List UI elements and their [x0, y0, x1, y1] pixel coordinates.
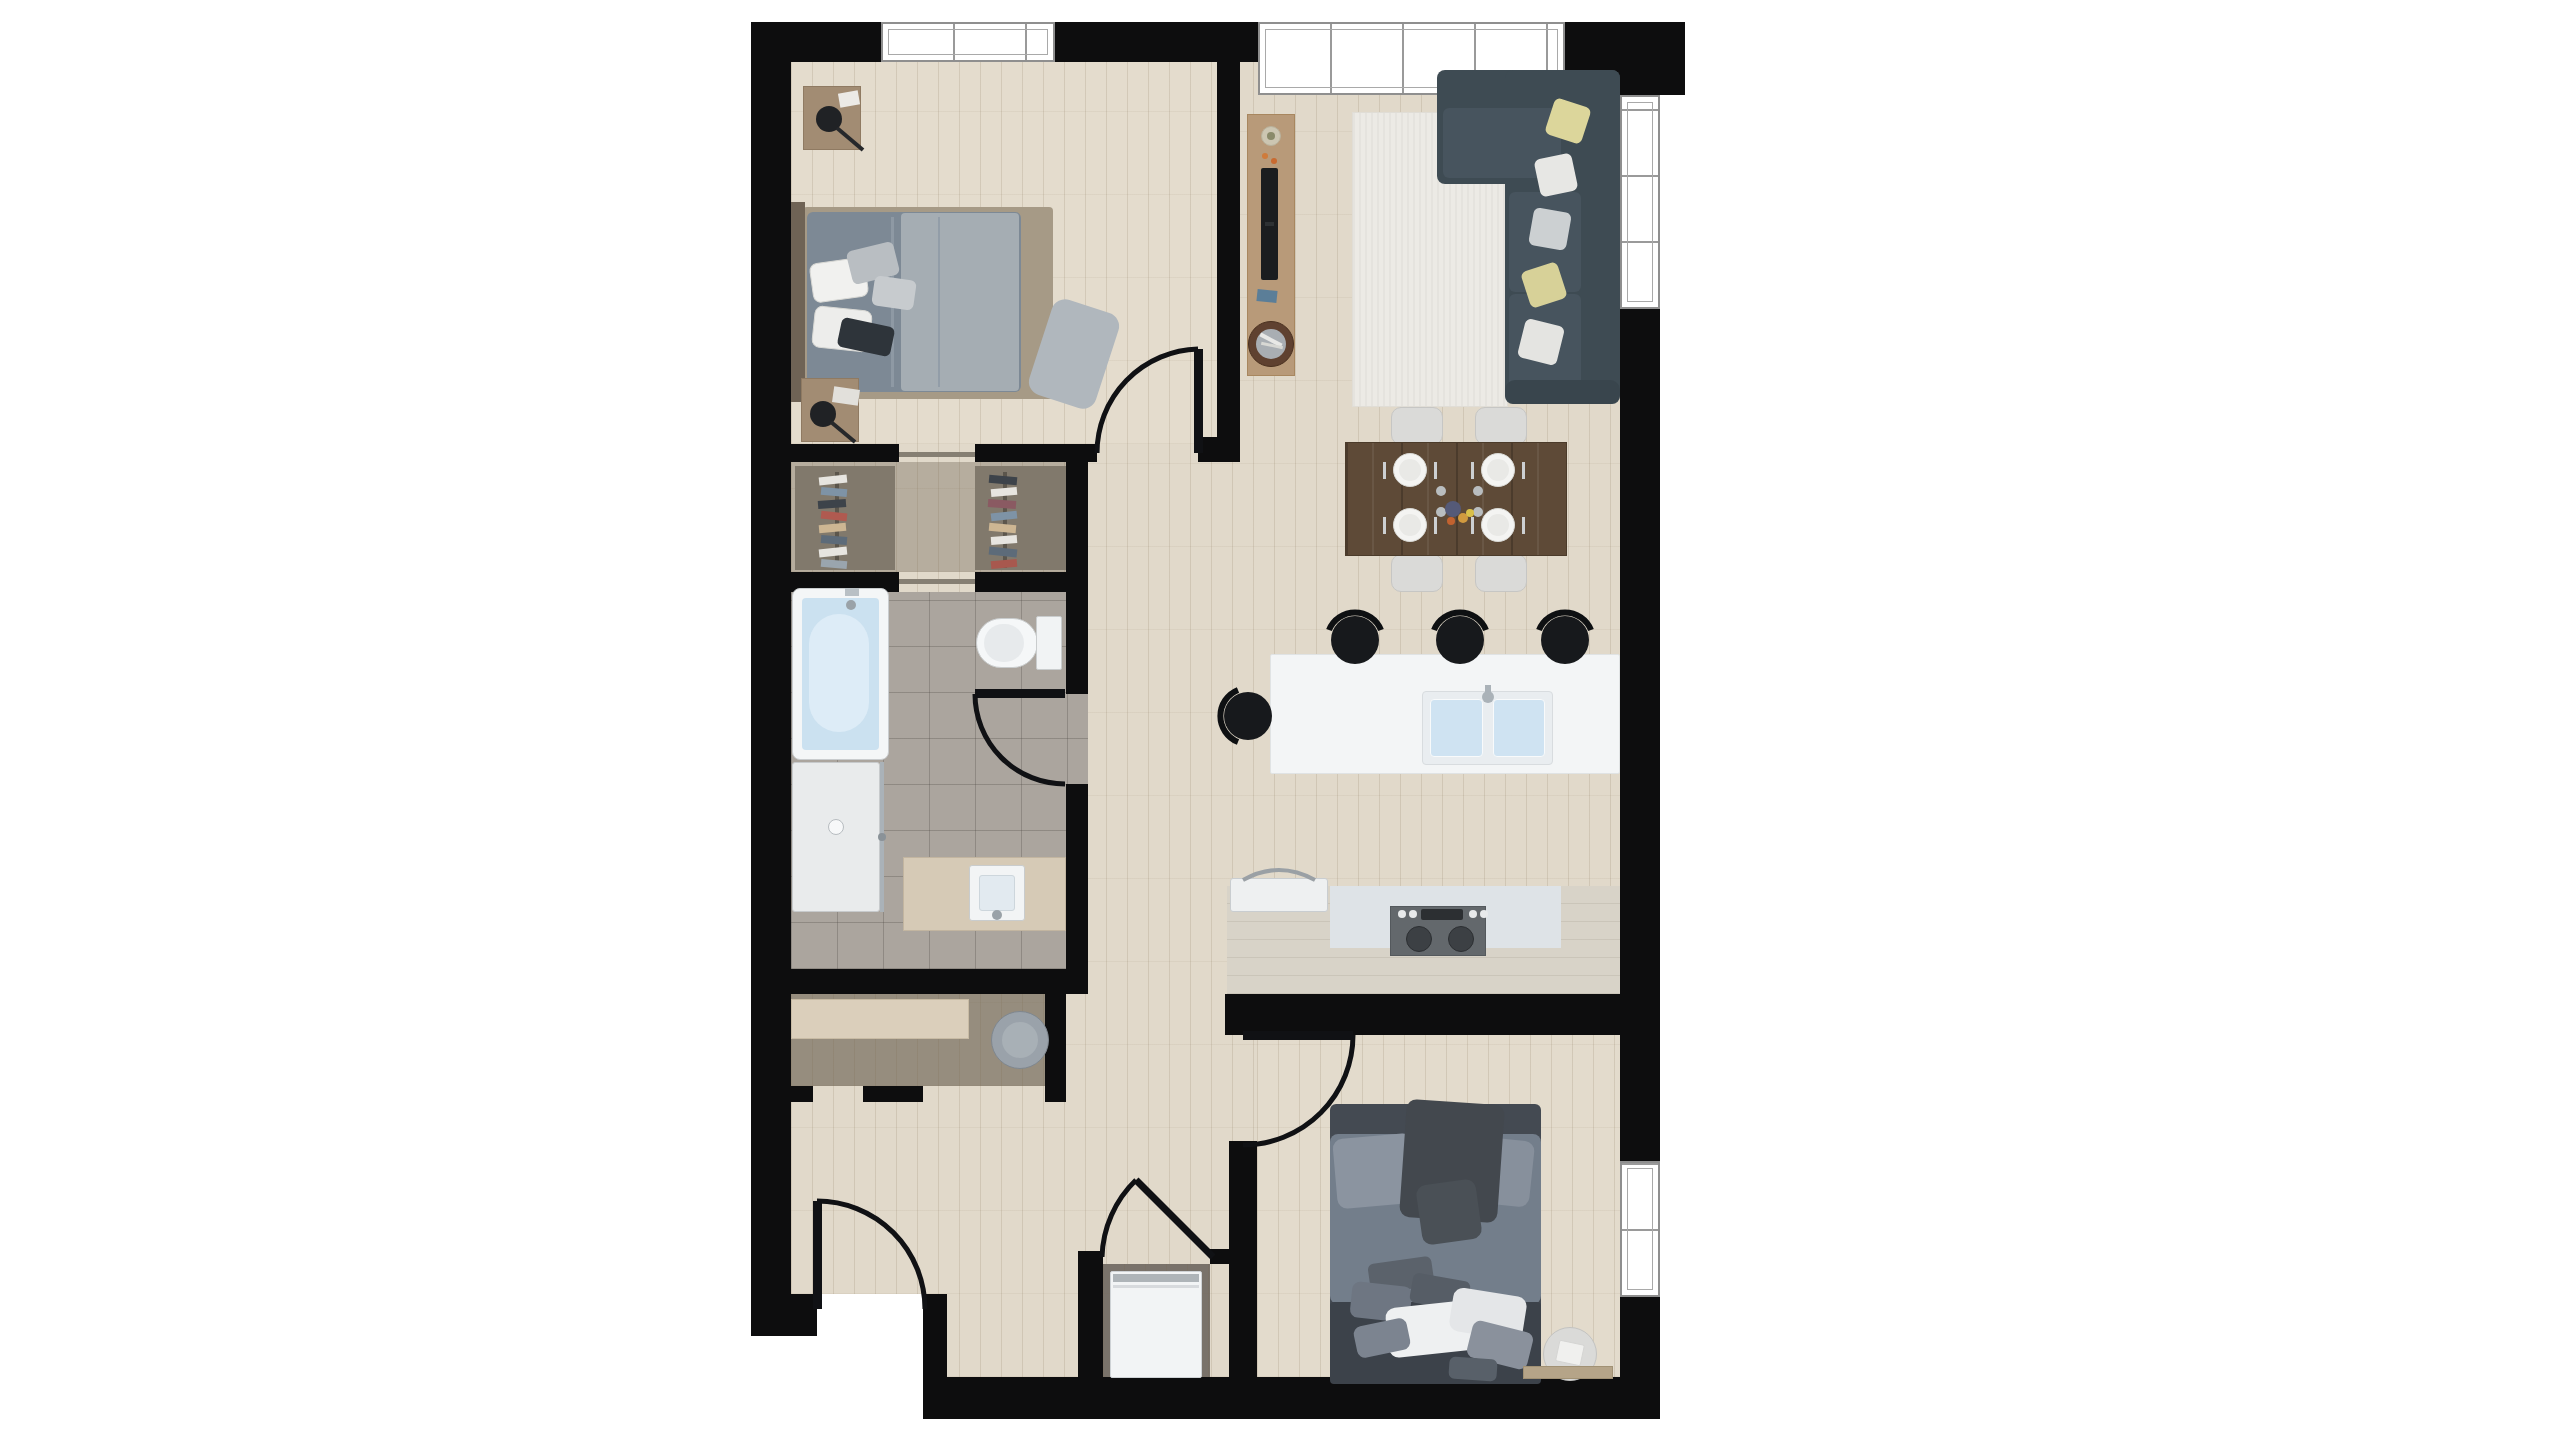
dinner-plate-inner — [1487, 459, 1509, 481]
window-top-bedroom — [881, 22, 1055, 62]
wall-top-left — [751, 22, 881, 62]
vanity-sink-basin — [979, 875, 1015, 911]
dining-chair — [1391, 554, 1443, 592]
wall-kitchen-bottom — [1225, 994, 1620, 1035]
stove-knob — [1480, 910, 1488, 918]
book — [1256, 289, 1277, 303]
wall-utility-right — [1045, 994, 1066, 1102]
wall-bathroom-bottom — [791, 969, 1066, 994]
utility-bench — [791, 999, 969, 1039]
wall-top-mid — [1055, 22, 1258, 62]
dining-chair — [1475, 554, 1527, 592]
stove-knob — [1469, 910, 1477, 918]
cutlery — [1471, 517, 1474, 534]
cutlery — [1522, 517, 1525, 534]
candle — [1271, 158, 1277, 164]
wall-closet-bottom-right — [975, 572, 1066, 592]
wall-closet-right-upper — [1066, 462, 1088, 694]
cutlery — [1522, 462, 1525, 479]
stove-knob — [1398, 910, 1406, 918]
wall-niche-left — [1078, 1251, 1103, 1390]
window-right-living — [1620, 95, 1660, 309]
plant — [1267, 132, 1275, 140]
shower-tray — [792, 762, 880, 912]
toilet-seat-inner — [984, 624, 1024, 662]
wall-right-upper — [1620, 309, 1660, 1161]
shower-drain — [828, 819, 844, 835]
island-sink-basin-right — [1493, 699, 1545, 757]
bathtub-water-swirl — [809, 614, 869, 732]
door-leaf-bedroom1 — [1194, 349, 1203, 453]
wall-closet-right-lower — [1066, 784, 1088, 994]
stove-control-panel — [1421, 909, 1463, 920]
bed1-headboard — [791, 202, 805, 402]
cutlery — [1434, 462, 1437, 479]
bathtub-faucet — [846, 600, 856, 610]
wall-entry-step — [923, 1294, 947, 1419]
clothes-item — [821, 535, 847, 545]
bar-stool — [1331, 616, 1379, 664]
drinking-glass — [1436, 486, 1446, 496]
wall-entry-bottom-left — [751, 1294, 817, 1336]
bar-stool — [1436, 616, 1484, 664]
dining-chair — [1475, 407, 1527, 445]
sofa-pillow-gray — [1528, 207, 1572, 251]
window-right-bedroom2 — [1620, 1161, 1660, 1297]
bar-stool — [1224, 692, 1272, 740]
bed1-knit-throw — [901, 213, 1019, 391]
cutlery — [1471, 462, 1474, 479]
drinking-glass — [1473, 507, 1483, 517]
bed1-pillow-gray2 — [871, 275, 917, 311]
threshold-closet-top — [899, 452, 975, 457]
sofa-armrest — [1505, 380, 1620, 404]
cutlery — [1383, 517, 1386, 534]
fruit — [1466, 509, 1474, 517]
wall-utility-bottom-left — [791, 1086, 813, 1102]
bed2-wall-tray — [1523, 1366, 1613, 1379]
bed1-fold-line2 — [938, 217, 940, 387]
wall-bedroom1-bottom-left — [791, 444, 899, 462]
dining-table — [1345, 442, 1567, 556]
lamp-bottom — [810, 401, 836, 427]
wall-left — [751, 36, 791, 1336]
island-faucet — [1482, 691, 1494, 703]
nightstand-magazine — [832, 386, 860, 405]
laundry-basket-inner — [1002, 1022, 1038, 1058]
vanity-faucet — [992, 910, 1002, 920]
door-leaf-entry — [813, 1201, 822, 1309]
wall-bedroom1-bottom-right — [975, 444, 1097, 462]
floor-plan — [751, 22, 1685, 1419]
outside-mask-bottom-left — [751, 1336, 923, 1419]
drinking-glass — [1473, 486, 1483, 496]
wall-niche-right-stub — [1210, 1249, 1229, 1264]
door-leaf-bedroom2 — [1243, 1031, 1353, 1040]
threshold-closet-bottom — [899, 579, 975, 584]
shower-handle — [878, 833, 886, 841]
dinner-plate-inner — [1399, 514, 1421, 536]
stove-burner — [1406, 926, 1432, 952]
entry-door-opening — [817, 1294, 925, 1336]
bed2-pillow-dark — [1448, 1356, 1497, 1381]
bathtub-filler — [845, 588, 859, 596]
cutlery — [1434, 517, 1437, 534]
wall-utility-bottom-right — [863, 1086, 923, 1102]
sofa-pillow-white — [1533, 152, 1578, 197]
dinner-plate-inner — [1487, 514, 1509, 536]
bar-stool — [1541, 616, 1589, 664]
bed2-throw-tail — [1415, 1178, 1483, 1246]
tv-stand — [1265, 222, 1274, 226]
toilet-tank — [1036, 616, 1062, 670]
lamp-top — [816, 106, 842, 132]
cutlery — [1383, 462, 1386, 479]
stove-knob — [1409, 910, 1417, 918]
fruit — [1447, 517, 1455, 525]
washing-machine-lid — [1113, 1274, 1199, 1282]
dining-chair — [1391, 407, 1443, 445]
kitchen-appliance — [1230, 878, 1328, 912]
island-sink-basin-left — [1430, 699, 1483, 757]
wall-bedroom2-left — [1229, 1141, 1257, 1377]
wall-bedroom1-right — [1217, 62, 1240, 444]
page: { "meta": { "canvas_w": 2560, "canvas_h"… — [0, 0, 2560, 1440]
dinner-plate-inner — [1399, 459, 1421, 481]
door-leaf-bathroom — [975, 689, 1065, 698]
stove-burner — [1448, 926, 1474, 952]
candle — [1262, 153, 1268, 159]
washing-machine-line — [1113, 1285, 1199, 1288]
wall-bottom — [947, 1377, 1660, 1419]
